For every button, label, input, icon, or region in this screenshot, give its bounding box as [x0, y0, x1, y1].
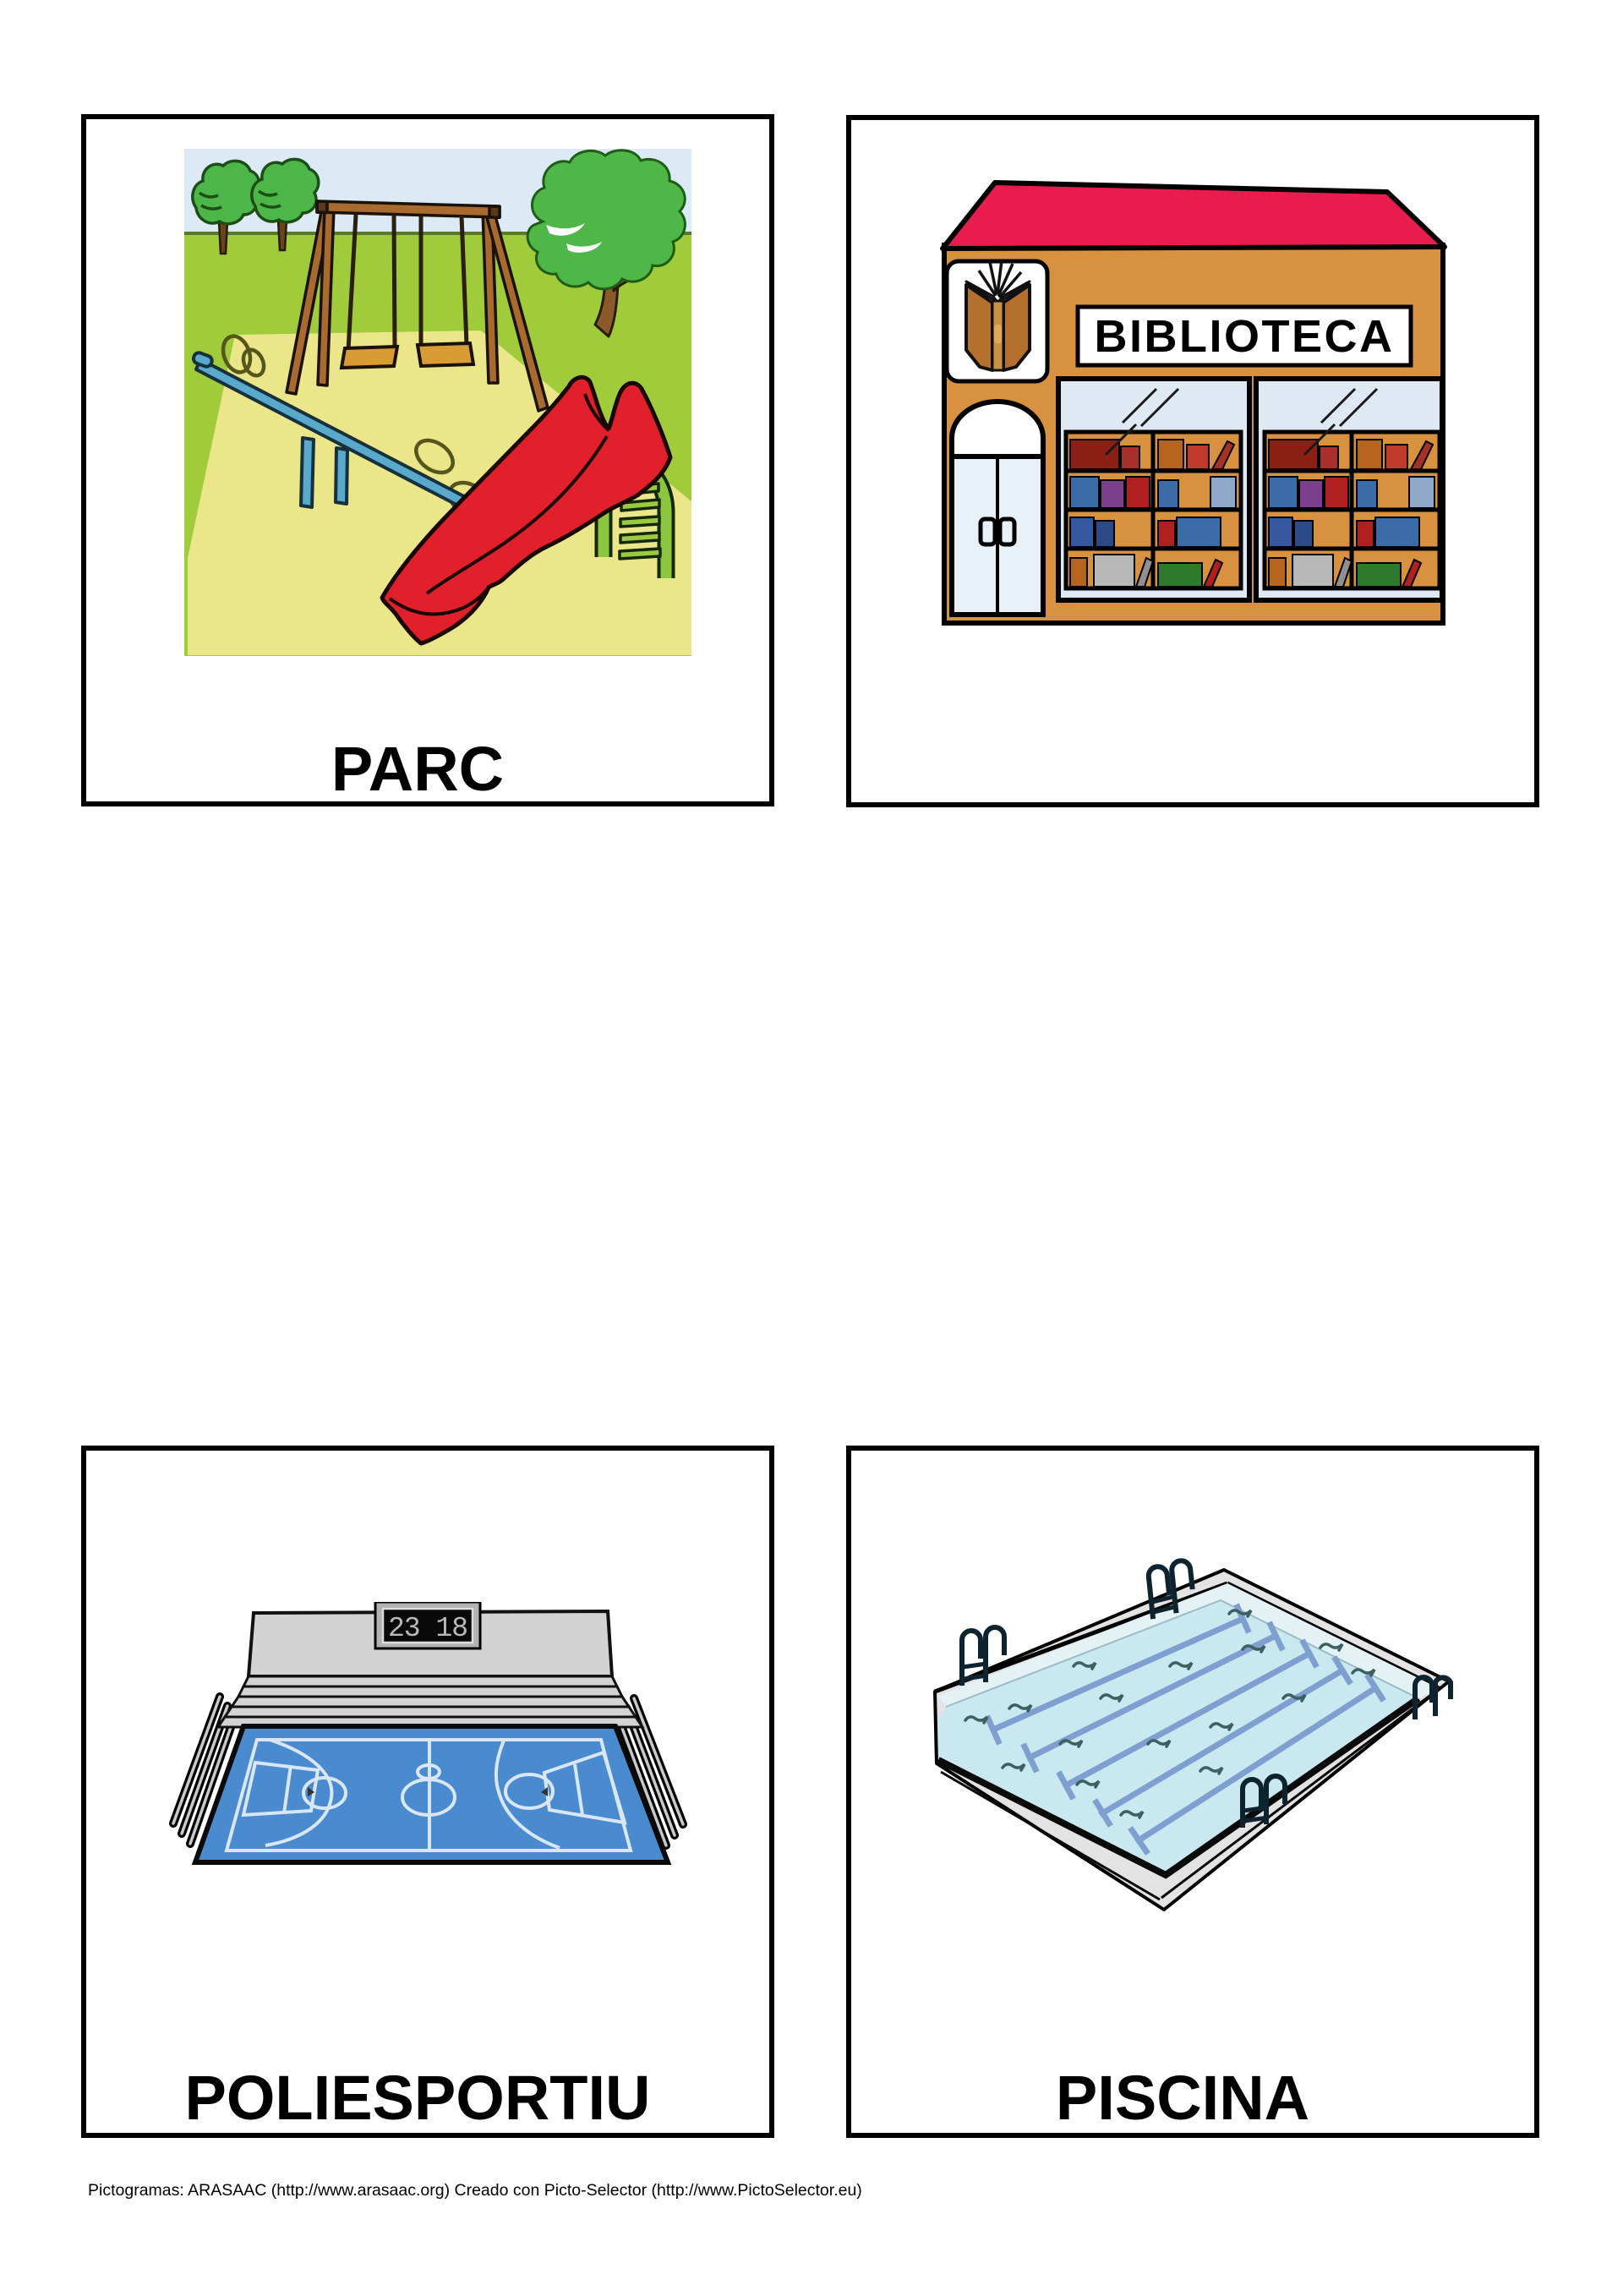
svg-text:BIBLIOTECA: BIBLIOTECA — [1095, 311, 1395, 362]
svg-text:23 18: 23 18 — [388, 1613, 467, 1644]
